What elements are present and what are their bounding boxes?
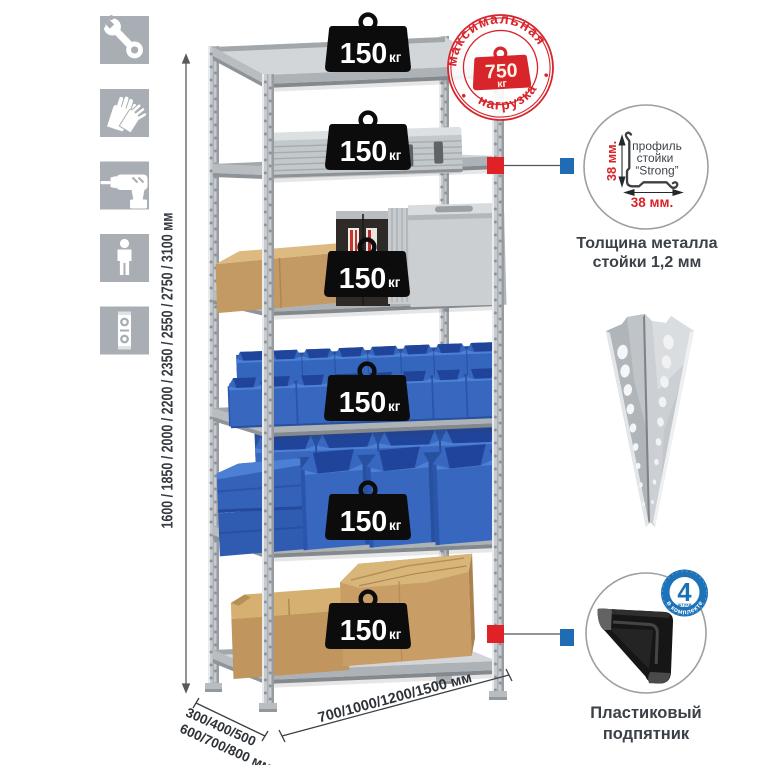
svg-text:штуки: штуки <box>678 602 692 607</box>
svg-text:“Strong”: “Strong” <box>635 164 678 178</box>
svg-text:150: 150 <box>340 38 388 70</box>
svg-text:1600 / 1850 / 2000 / 2200 / 23: 1600 / 1850 / 2000 / 2200 / 2350 / 2550 … <box>160 213 177 529</box>
svg-text:кг: кг <box>389 518 402 533</box>
svg-text:стойки 1,2 мм: стойки 1,2 мм <box>593 254 702 271</box>
svg-text:Пластиковый: Пластиковый <box>590 704 701 722</box>
svg-text:150: 150 <box>340 506 388 538</box>
svg-text:кг: кг <box>497 78 508 91</box>
svg-text:150: 150 <box>339 387 387 419</box>
svg-text:кг: кг <box>389 50 402 65</box>
svg-text:кг: кг <box>389 148 402 163</box>
svg-text:кг: кг <box>388 399 401 414</box>
svg-text:подпятник: подпятник <box>603 725 690 743</box>
svg-text:кг: кг <box>389 627 402 642</box>
svg-text:150: 150 <box>339 263 387 295</box>
svg-text:кг: кг <box>388 275 401 290</box>
svg-text:Толщина металла: Толщина металла <box>576 235 717 252</box>
svg-text:150: 150 <box>340 615 388 647</box>
svg-text:150: 150 <box>340 136 388 168</box>
svg-text:38 мм.: 38 мм. <box>631 195 674 210</box>
svg-text:38 мм.: 38 мм. <box>604 141 619 181</box>
